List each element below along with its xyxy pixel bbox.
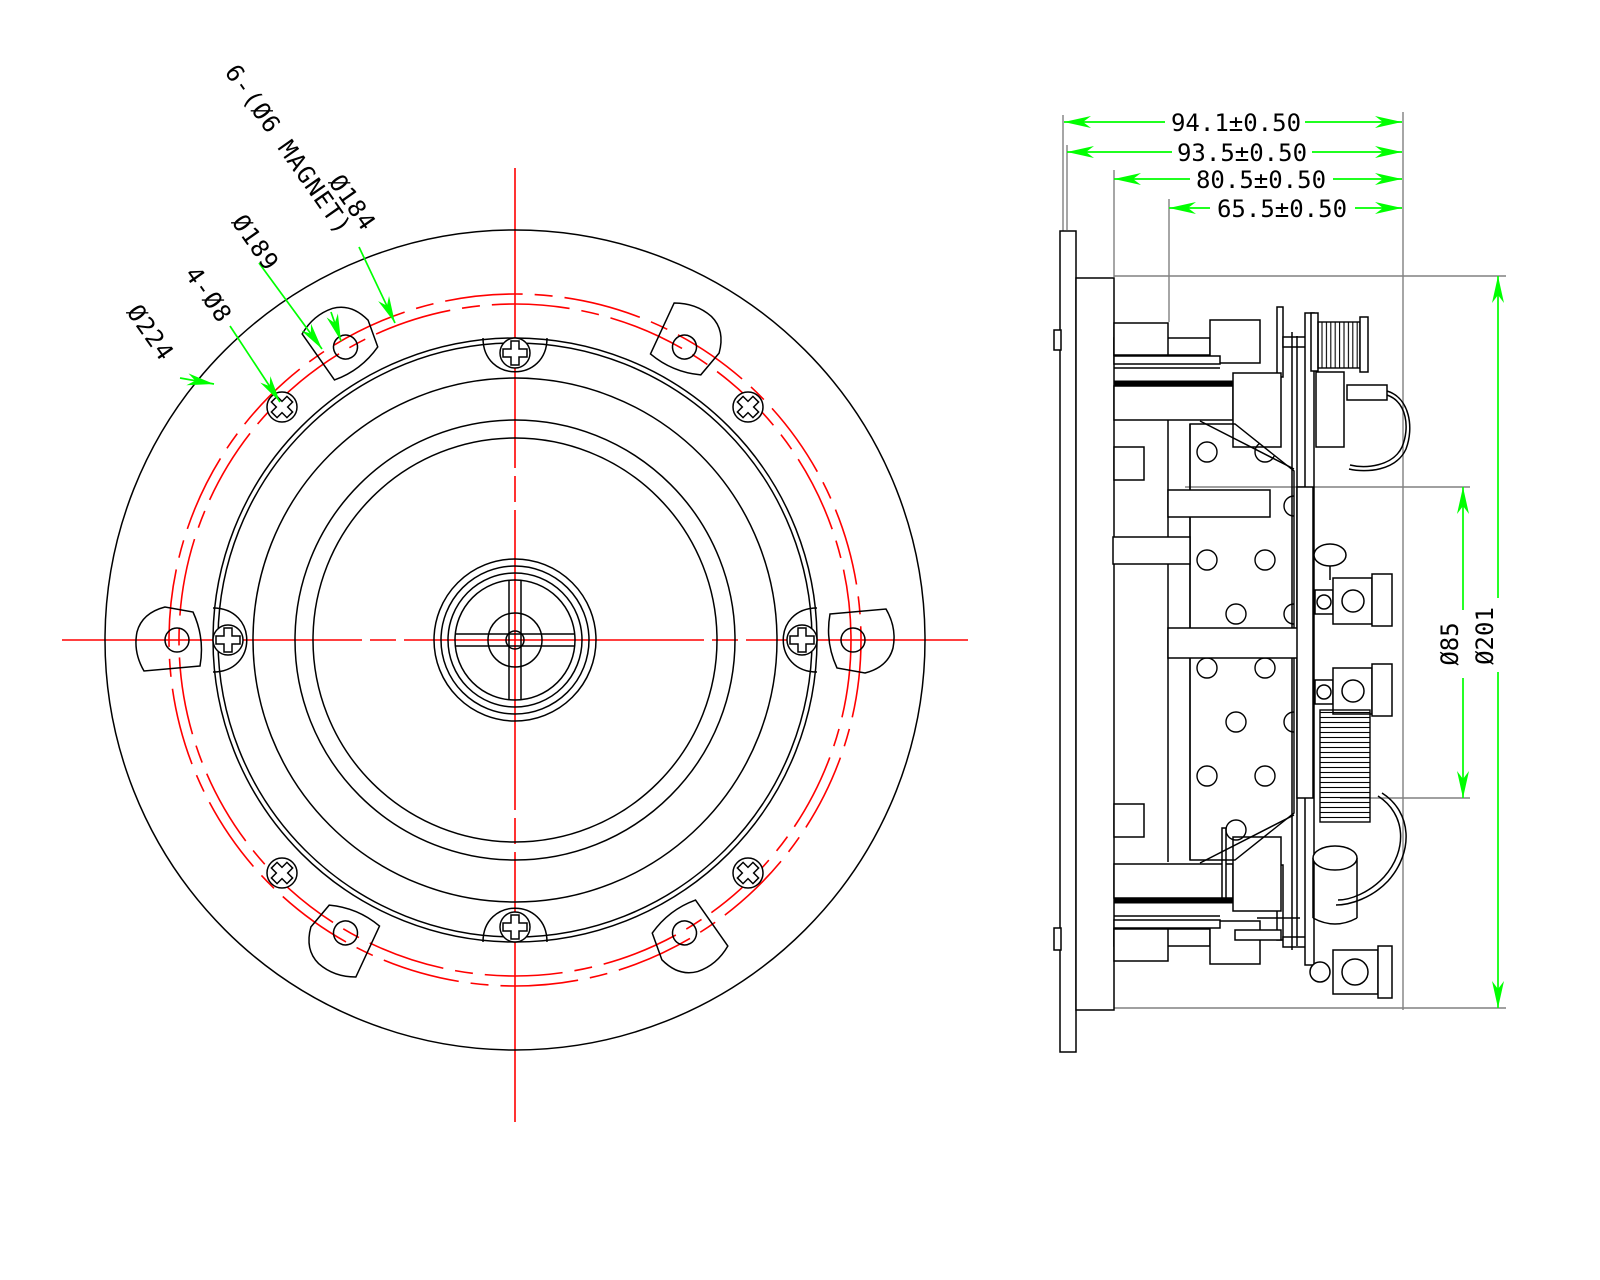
dim-overall-depth: 94.1±0.50: [1064, 109, 1402, 137]
dim-basket-depth: 65.5±0.50: [1169, 195, 1402, 223]
callout-flange-od: Ø224: [121, 299, 179, 366]
cad-drawing: Ø224 4-Ø8 Ø189 6-(Ø6 MAGNET) Ø184: [0, 0, 1600, 1280]
dim-overall-depth-value: 94.1±0.50: [1171, 109, 1301, 137]
callout-circle-189: Ø189: [226, 209, 284, 276]
dim-magnet-od: Ø85: [1436, 487, 1469, 798]
dim-body-depth: 80.5±0.50: [1114, 166, 1402, 194]
dim-magnet-od-value: Ø85: [1436, 622, 1464, 665]
dim-body-depth-value: 80.5±0.50: [1196, 166, 1326, 194]
front-centerlines-icon: [62, 168, 968, 1122]
dim-basket-depth-value: 65.5±0.50: [1217, 195, 1347, 223]
drawing-sheet: Ø224 4-Ø8 Ø189 6-(Ø6 MAGNET) Ø184: [0, 0, 1600, 1280]
dim-body-od: Ø201: [1471, 276, 1504, 1008]
side-geometry: [1054, 231, 1410, 1052]
callout-screw-holes: 4-Ø8: [179, 261, 237, 328]
front-callouts: Ø224 4-Ø8 Ø189 6-(Ø6 MAGNET) Ø184: [121, 59, 400, 405]
side-view: 94.1±0.50 93.5±0.50 80.5±0.50 65.5±0.50: [1054, 109, 1506, 1052]
front-view: Ø224 4-Ø8 Ø189 6-(Ø6 MAGNET) Ø184: [62, 59, 968, 1122]
dim-flange-to-back-value: 93.5±0.50: [1177, 139, 1307, 167]
dim-flange-to-back: 93.5±0.50: [1067, 139, 1402, 167]
dim-body-od-value: Ø201: [1471, 607, 1499, 665]
callout-magnet-tabs: 6-(Ø6 MAGNET): [219, 59, 357, 240]
